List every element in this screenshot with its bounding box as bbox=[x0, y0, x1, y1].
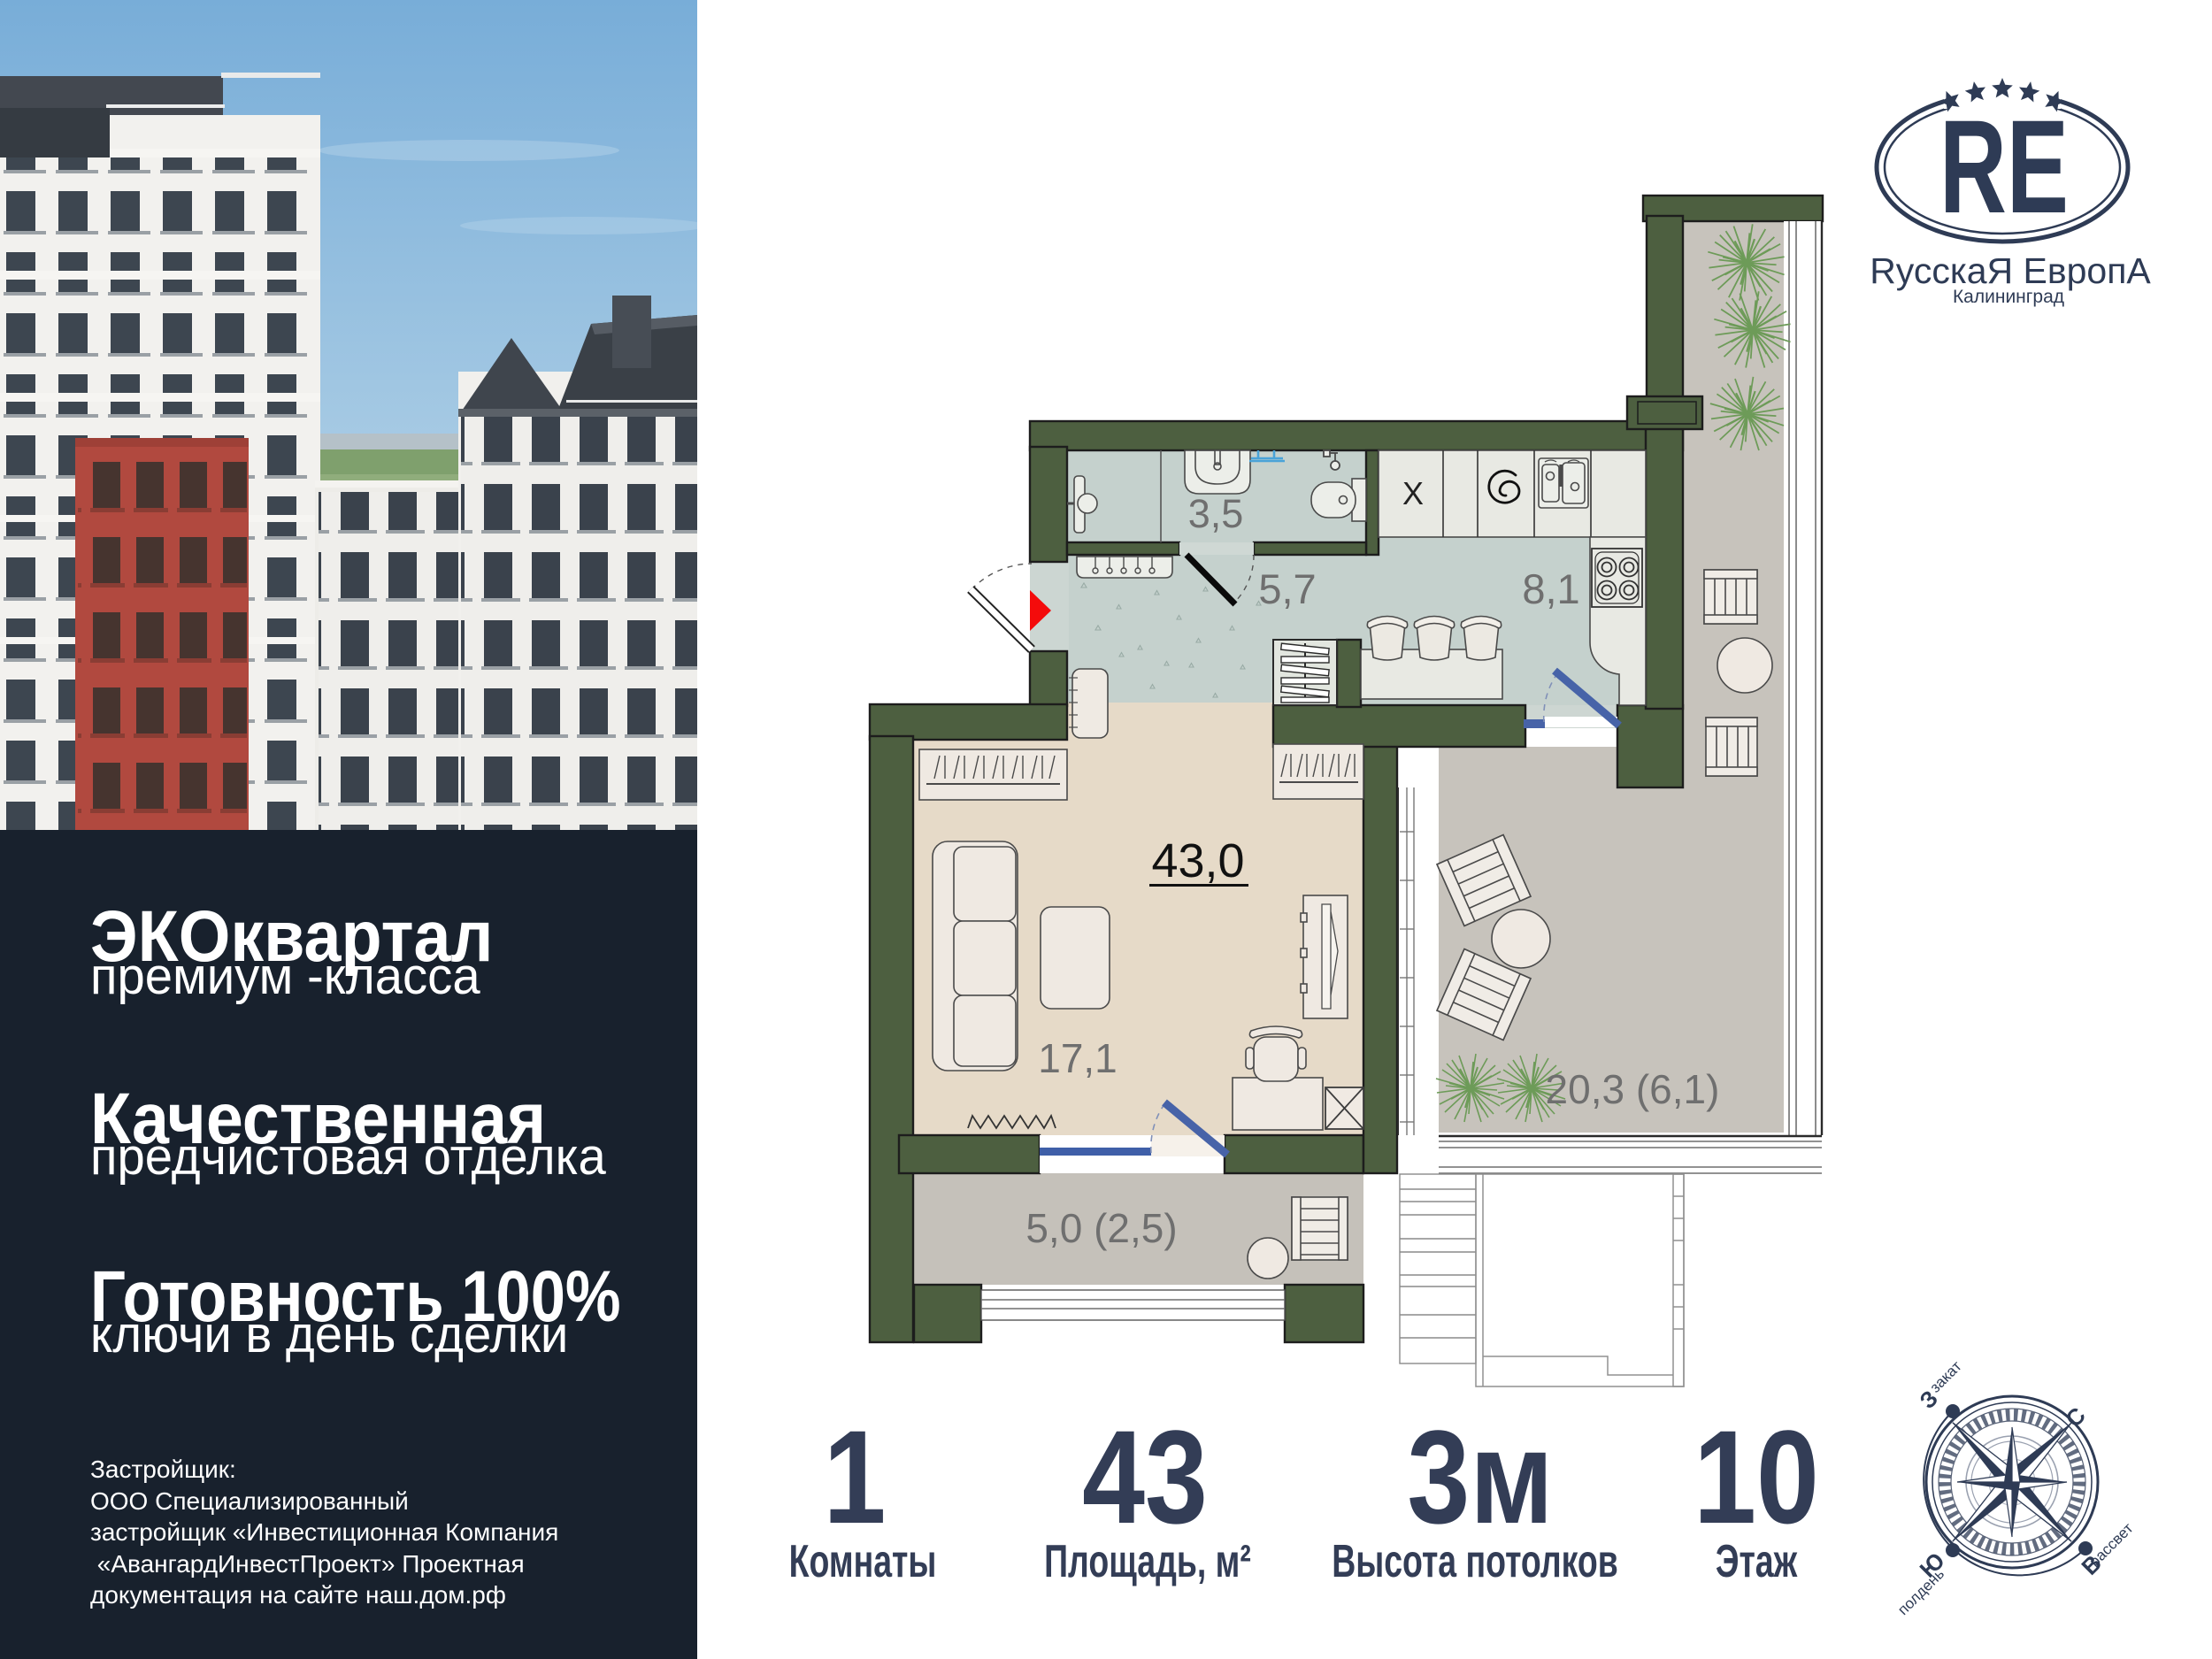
svg-text:43,0: 43,0 bbox=[1151, 834, 1244, 887]
svg-text:полдень: полдень bbox=[1894, 1565, 1947, 1618]
svg-text:5,0 (2,5): 5,0 (2,5) bbox=[1025, 1205, 1177, 1251]
svg-text:Калининград: Калининград bbox=[1953, 287, 2064, 307]
svg-text:3,5: 3,5 bbox=[1188, 491, 1244, 536]
svg-text:С: С bbox=[2060, 1402, 2091, 1432]
svg-text:X: X bbox=[1402, 475, 1424, 511]
svg-text:RE: RE bbox=[1939, 94, 2069, 242]
svg-text:20,3 (6,1): 20,3 (6,1) bbox=[1546, 1066, 1720, 1112]
svg-text:8,1: 8,1 bbox=[1522, 565, 1579, 612]
svg-text:17,1: 17,1 bbox=[1038, 1035, 1118, 1081]
svg-text:RусскаЯ ЕвропА: RусскаЯ ЕвропА bbox=[1870, 250, 2151, 291]
svg-text:рассвет: рассвет bbox=[2086, 1520, 2137, 1571]
svg-text:закат: закат bbox=[1927, 1357, 1965, 1395]
svg-text:5,7: 5,7 bbox=[1258, 565, 1316, 612]
